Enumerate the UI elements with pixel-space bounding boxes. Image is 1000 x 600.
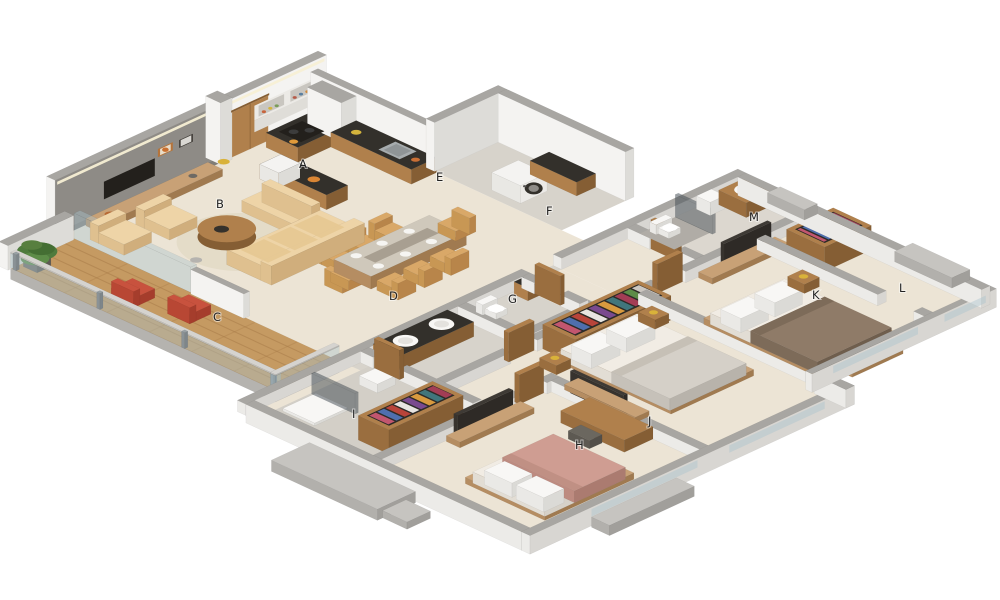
disc [398, 337, 413, 344]
door [560, 274, 564, 305]
disc [400, 251, 411, 256]
face-disc [293, 96, 297, 99]
disc [373, 263, 384, 268]
shape [470, 215, 476, 235]
door [400, 348, 404, 379]
room-label-M: M [749, 210, 759, 224]
room-label-H: H [575, 438, 584, 452]
shape [445, 256, 451, 276]
disc [351, 253, 362, 258]
disc [434, 321, 449, 328]
floorplan-stage: ABCDEFGHIJKLM [0, 0, 1000, 600]
door [515, 373, 520, 405]
disc [351, 130, 362, 135]
shape [250, 104, 251, 150]
room-label-J: J [647, 414, 652, 428]
disc [289, 130, 299, 135]
door [504, 331, 509, 363]
shape [206, 96, 221, 165]
shape [221, 98, 233, 165]
room-label-A: A [299, 157, 307, 171]
disc [305, 128, 315, 133]
face-disc [275, 104, 279, 107]
disc [662, 224, 677, 231]
disc [649, 310, 658, 314]
shape [368, 221, 374, 241]
disc [21, 240, 42, 250]
disc [550, 356, 559, 360]
face-disc [268, 107, 272, 110]
shape [0, 242, 8, 271]
shape [185, 331, 188, 349]
floorplan-3d-render: ABCDEFGHIJKLM [0, 0, 1000, 600]
shape [182, 331, 185, 349]
room-label-E: E [436, 170, 444, 184]
disc [289, 140, 298, 144]
shape [13, 253, 16, 271]
shape [16, 253, 19, 271]
shape [625, 148, 634, 201]
disc [214, 226, 229, 233]
face-disc [162, 148, 169, 152]
shape [100, 292, 103, 310]
shape [190, 305, 196, 324]
shape [418, 268, 424, 288]
disc [190, 257, 202, 263]
disc [218, 159, 230, 165]
disc [426, 239, 437, 244]
shape [97, 292, 100, 310]
outer-wall [806, 371, 812, 393]
room-label-C: C [213, 310, 222, 324]
room-label-B: B [216, 197, 224, 211]
face-disc [523, 185, 526, 187]
shape [244, 291, 250, 318]
utility-wall [426, 119, 435, 172]
disc [411, 158, 420, 162]
disc [488, 305, 505, 313]
room-label-I: I [352, 407, 356, 421]
disc [308, 176, 321, 182]
face-disc [262, 110, 266, 113]
room-label-K: K [812, 288, 820, 302]
disc [188, 174, 197, 178]
disc [404, 229, 415, 234]
room-label-G: G [508, 292, 517, 306]
face-disc [529, 185, 539, 192]
disc [376, 241, 387, 246]
face-disc [299, 93, 303, 96]
disc [799, 274, 809, 278]
room-label-D: D [389, 289, 398, 303]
room-label-L: L [899, 281, 906, 295]
room-label-F: F [546, 204, 553, 218]
